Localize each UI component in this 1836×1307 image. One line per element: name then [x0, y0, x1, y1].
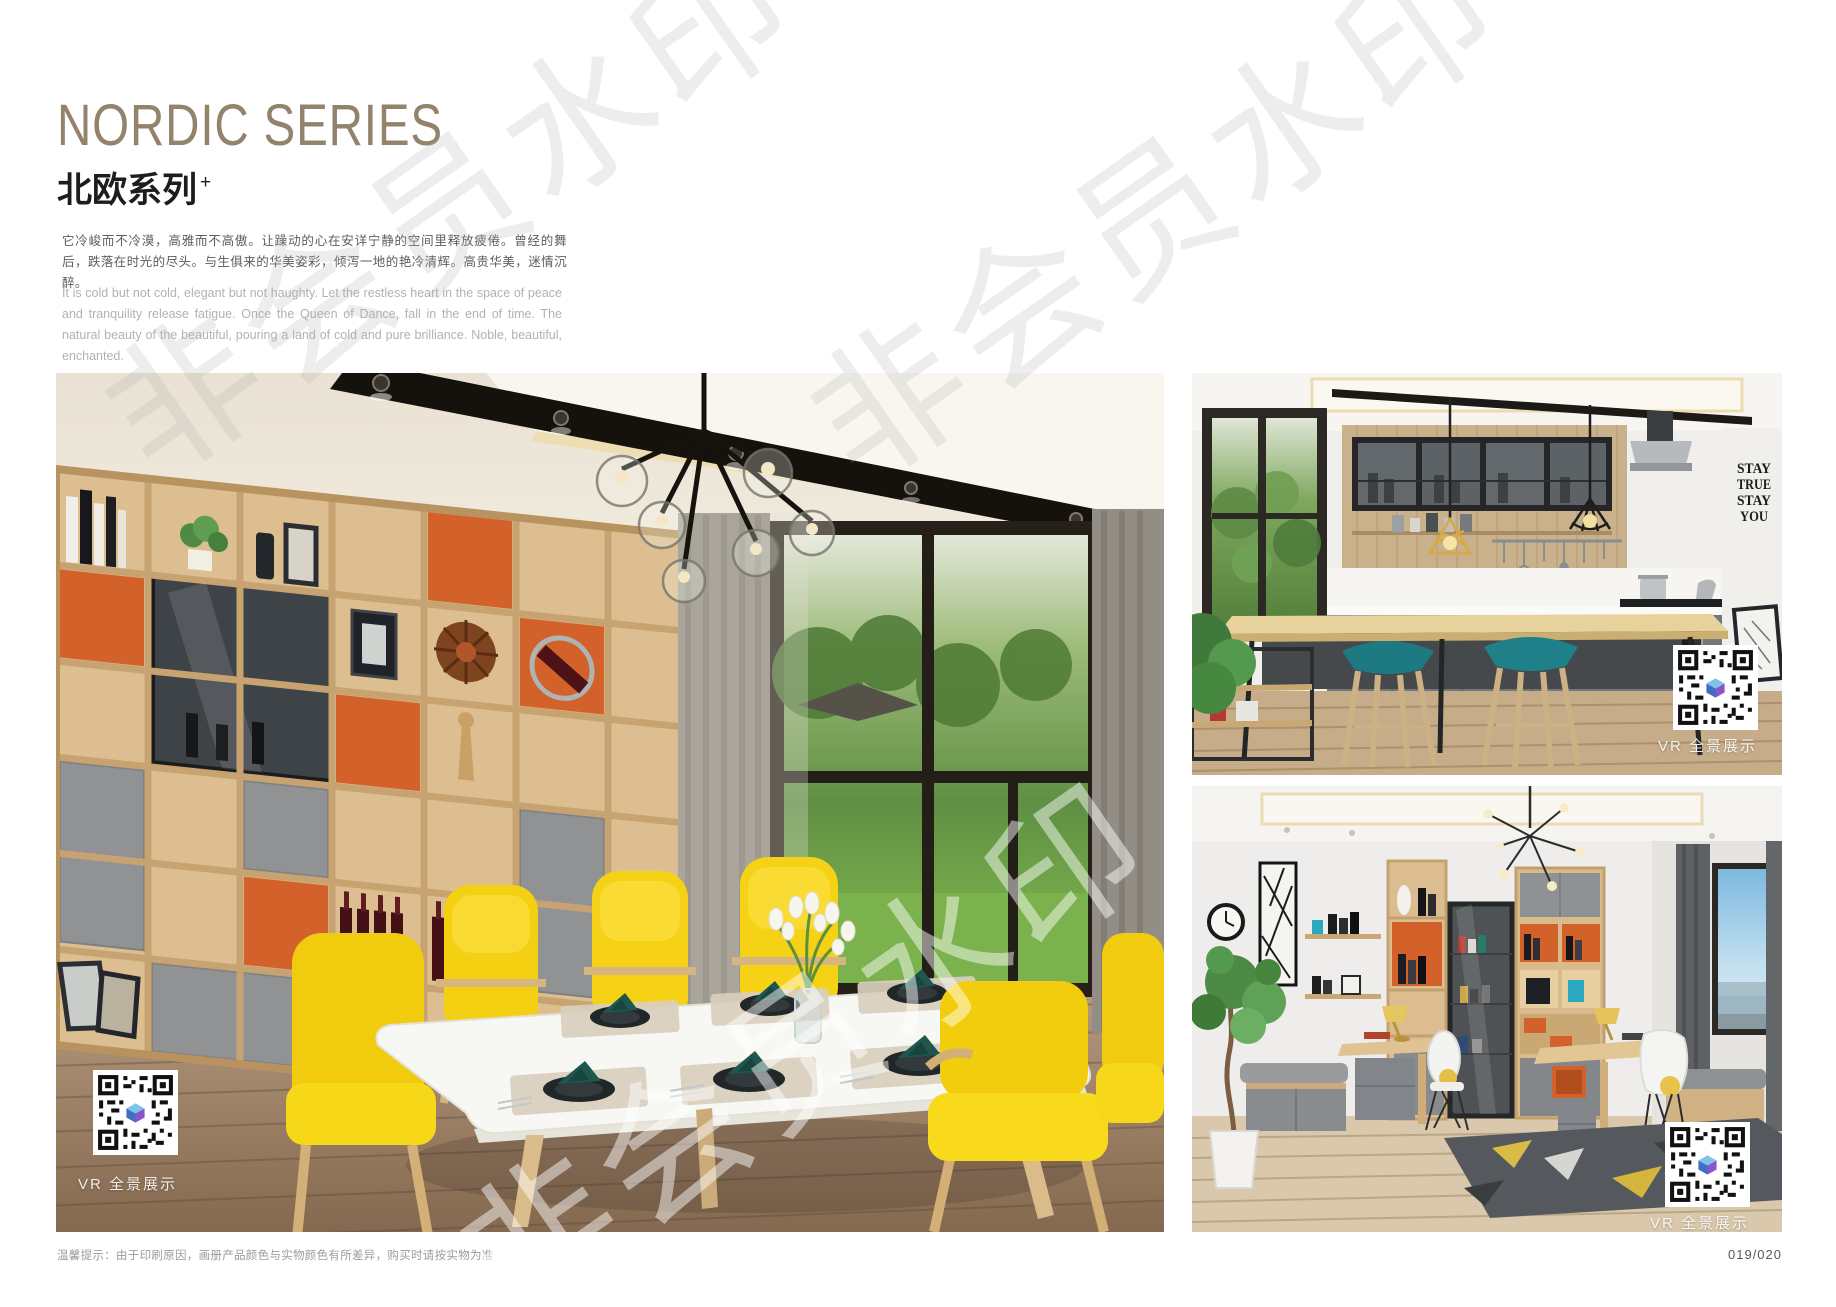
dining-room-photo: VR 全景展示: [56, 373, 1164, 1232]
dining-chair-corner: [1096, 933, 1164, 1123]
kitchen-window: [1202, 408, 1327, 636]
catalog-page: NORDIC SERIES 北欧系列+ 它冷峻而不冷漠，高雅而不高傲。让躁动的心…: [0, 0, 1836, 1307]
wall-quote: STAY TRUE STAY YOU: [1737, 461, 1771, 525]
upper-glass-cabinets: [1352, 437, 1612, 511]
qr-code-study: [1665, 1122, 1750, 1207]
page-subtitle-cn: 北欧系列+: [57, 162, 211, 213]
svg-text:STAY: STAY: [1737, 461, 1771, 477]
wall-clock: [1209, 905, 1243, 939]
subtitle-superscript: +: [200, 172, 211, 193]
vr-label-dining: VR 全景展示: [78, 1173, 218, 1194]
dining-room-illustration: [56, 373, 1164, 1232]
qr-code-kitchen: [1673, 645, 1758, 730]
qr-code-dining: [93, 1070, 178, 1155]
svg-text:STAY: STAY: [1737, 493, 1771, 509]
vr-label-kitchen: VR 全景展示: [1658, 735, 1782, 756]
page-number: 019/020: [1690, 1247, 1782, 1262]
footer-disclaimer: 温馨提示：由于印刷原因，画册产品颜色与实物颜色有所差异，购买时请按实物为准: [57, 1247, 494, 1263]
study-room-photo: VR 全景展示: [1192, 786, 1782, 1232]
page-title: NORDIC SERIES: [57, 92, 443, 159]
svg-text:YOU: YOU: [1740, 509, 1768, 525]
kitchen-photo: STAY TRUE STAY YOU: [1192, 373, 1782, 775]
subtitle-text: 北欧系列: [57, 171, 197, 210]
description-english: It is cold but not cold, elegant but not…: [62, 283, 562, 367]
svg-text:TRUE: TRUE: [1737, 477, 1771, 493]
vr-label-study: VR 全景展示: [1650, 1212, 1782, 1232]
bench: [1240, 1063, 1348, 1131]
